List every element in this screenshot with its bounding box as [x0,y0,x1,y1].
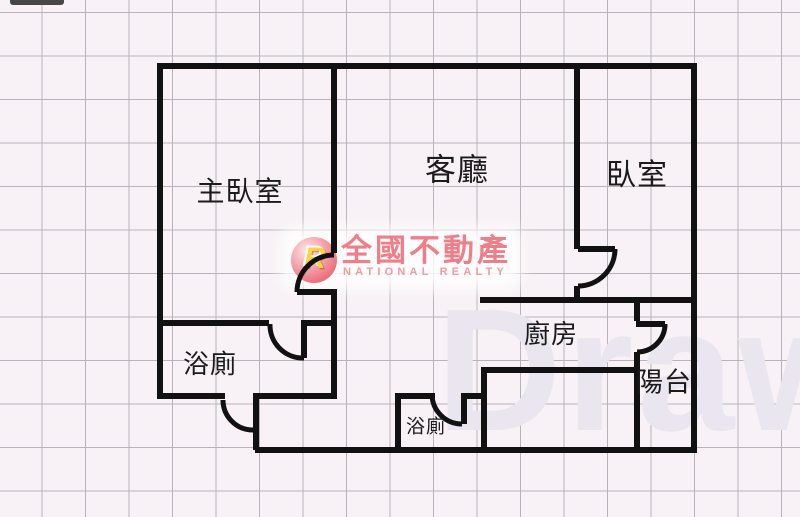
door-leaf-bathroom-main [301,323,307,358]
room-label-master-bedroom: 主臥室 [196,178,283,206]
wall-kitchen-bottom [482,367,634,373]
wall-balcony-upper [634,300,640,321]
room-label-kitchen: 廚房 [524,321,578,347]
wall-utility-right [481,367,487,453]
wall-outer-top [157,63,697,69]
door-leaf-bathroom-small [461,393,467,424]
room-label-bathroom-small: 浴廁 [406,418,446,437]
wall-entry-step [253,399,259,450]
door-arc-bedroom [578,249,615,286]
door-arc-entry [223,400,253,430]
door-arc-bathroom-main [270,324,304,358]
wall-master-divider-lower [331,292,337,399]
room-label-balcony: 陽台 [636,370,692,397]
wall-entry-right [253,393,337,399]
door-arc-balcony [637,324,665,352]
wall-entry-left [157,393,225,399]
wall-outer-bottom [255,447,697,453]
wall-bathroom-small-top-left [395,393,435,399]
room-label-living-room: 客廳 [425,155,489,186]
wall-outer-left [157,63,163,399]
room-label-bedroom: 臥室 [606,161,668,191]
door-leaf-balcony [636,321,665,327]
door-leaf-bedroom [578,246,615,252]
room-label-bathroom-main: 浴廁 [183,351,237,377]
door-arc-master-bedroom [297,255,334,292]
wall-bedroom-divider [574,63,580,249]
door-leaf-master-bedroom [297,289,337,295]
wall-bathroom-small-left [395,393,401,450]
wall-kitchen-top [480,297,697,303]
wall-master-divider [331,63,337,253]
floorplan-walls [0,0,800,517]
floorplan-canvas: Draw R 全國不動產 NATIONAL REALTY [0,0,800,517]
wall-bathroom-top-left [157,320,269,326]
